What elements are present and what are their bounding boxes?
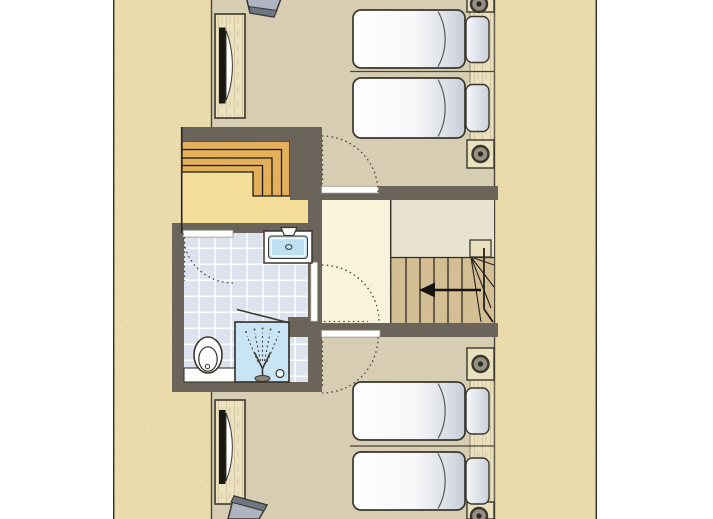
wall-lamp-icon [471, 508, 487, 519]
washbasin [264, 228, 312, 264]
shower-drain [276, 370, 284, 378]
faucet-icon [281, 228, 297, 236]
wall-bathroom-bottom [172, 382, 322, 392]
wall-lamp-icon [473, 356, 489, 372]
bed [353, 452, 489, 510]
tv-dresser [215, 400, 245, 504]
door-bathroom-hall [311, 262, 318, 321]
pillow [466, 85, 489, 132]
tv-screen [219, 410, 226, 484]
door-bathroom-inner [183, 230, 233, 237]
newel-post [470, 240, 491, 257]
tv-screen [219, 28, 226, 104]
wall-lamp-icon [471, 0, 487, 12]
door-bedroom-bottom [322, 330, 381, 337]
wall-lamp-icon [473, 146, 489, 162]
door-bedroom-top [322, 186, 379, 193]
toilet [194, 337, 222, 373]
pillow [466, 458, 489, 504]
floor-plan-svg [0, 0, 713, 519]
bed [353, 10, 489, 68]
pillow [466, 17, 489, 63]
bed [353, 382, 489, 440]
bed [353, 78, 489, 138]
wall-bathroom-left [172, 223, 184, 392]
pillow [466, 388, 489, 434]
floor-plan-page [0, 0, 713, 519]
tv-dresser [215, 14, 245, 118]
hall-floor [322, 186, 390, 337]
